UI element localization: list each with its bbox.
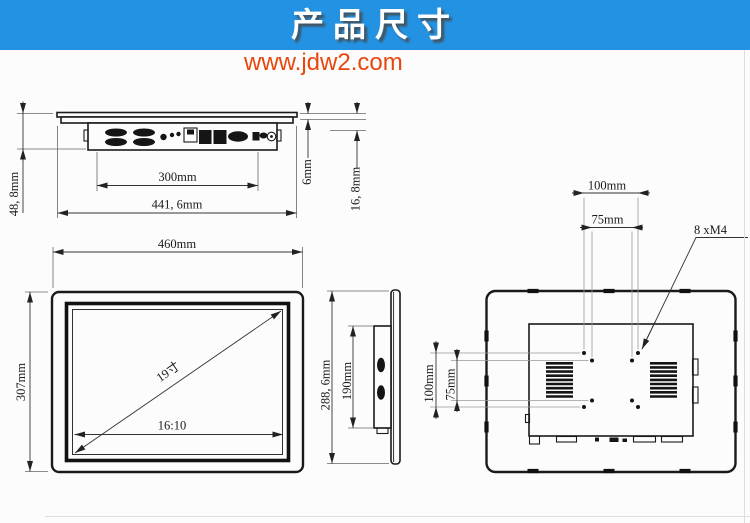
dim-label-vesa-width-75: 75mm <box>592 213 624 227</box>
dim-label-screw-spec: 8 xM4 <box>694 223 728 237</box>
back-view-drawing: 100mm 75mm 100mm 75mm 8 xM4 <box>422 179 748 473</box>
dim-label-bezel-thickness: 6mm <box>300 159 314 185</box>
side-view-housing <box>374 326 391 428</box>
dim-label-vesa-width-100: 100mm <box>588 179 626 193</box>
dim-label-width: 460mm <box>158 237 196 251</box>
page-bottom-border <box>45 516 750 517</box>
dimension-drawing: 300mm 441, 6mm 48, 8mm 6mm 16, 8mm 460mm… <box>0 0 750 523</box>
dim-label-front-depth: 16, 8mm <box>349 167 363 212</box>
dim-label-aspect-ratio: 16:10 <box>158 419 186 433</box>
top-view-drawing: 300mm 441, 6mm 48, 8mm 6mm 16, 8mm <box>7 102 366 219</box>
dim-label-overall-width: 441, 6mm <box>152 198 203 212</box>
dim-label-inner-width: 300mm <box>158 170 196 184</box>
dim-label-overall-height: 288, 6mm <box>319 359 333 410</box>
dim-label-vesa-height-100: 100mm <box>422 364 436 402</box>
vent-grille-right <box>650 363 677 396</box>
page-right-border <box>744 50 745 523</box>
dim-label-height: 307mm <box>14 363 28 401</box>
dim-label-overall-depth: 48, 8mm <box>7 172 21 217</box>
dim-label-diagonal: 19寸 <box>154 359 183 385</box>
side-view-drawing: 288, 6mm 190mm <box>319 290 401 464</box>
dim-label-body-height: 190mm <box>340 362 354 400</box>
dim-label-vesa-height-75: 75mm <box>444 368 458 400</box>
vent-grille-left <box>546 363 573 396</box>
side-view-bezel <box>391 290 400 464</box>
front-view-drawing: 460mm 307mm 19寸 16:10 <box>14 237 303 472</box>
product-dimensions-page: 产品尺寸 www.jdw2.com <box>0 0 750 523</box>
